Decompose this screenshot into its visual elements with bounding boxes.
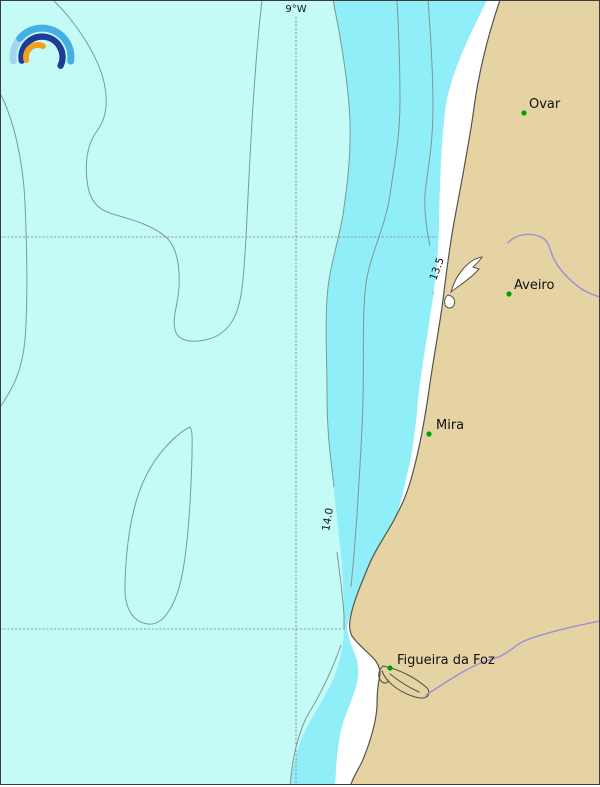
city-label-aveiro: Aveiro bbox=[514, 278, 554, 293]
city-marker-aveiro bbox=[506, 291, 511, 296]
map-canvas: 13.5 14.0 9°W Ovar Aveiro Mira Figueira … bbox=[0, 0, 600, 787]
city-label-figueira: Figueira da Foz bbox=[397, 653, 495, 668]
city-figueira-da-foz: Figueira da Foz bbox=[387, 653, 495, 671]
map-viewport: 13.5 14.0 9°W Ovar Aveiro Mira Figueira … bbox=[0, 0, 600, 787]
city-marker-mira bbox=[426, 431, 431, 436]
city-label-mira: Mira bbox=[436, 418, 464, 433]
city-marker-figueira bbox=[387, 665, 392, 670]
city-label-ovar: Ovar bbox=[529, 97, 561, 112]
city-marker-ovar bbox=[521, 110, 526, 115]
meridian-9w-label: 9°W bbox=[285, 4, 306, 15]
